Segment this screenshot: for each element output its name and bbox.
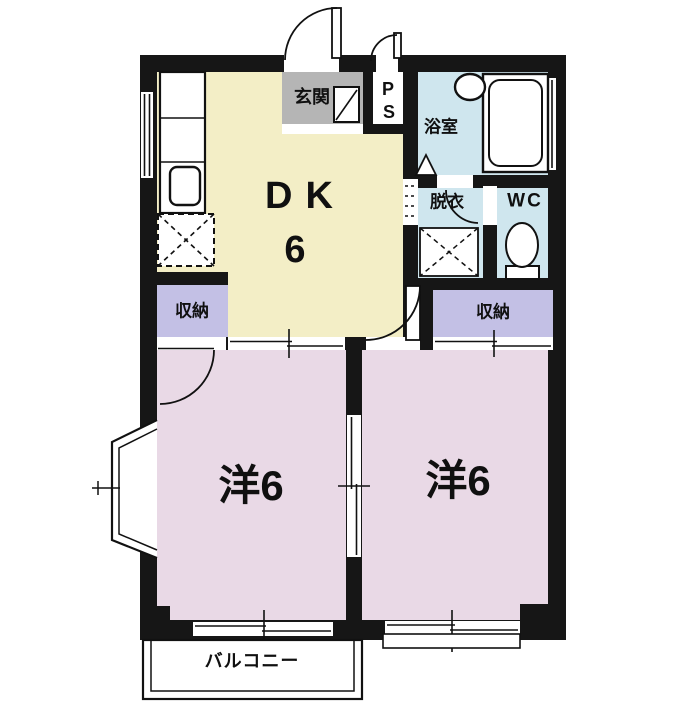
ps-label-s: S <box>383 103 395 121</box>
wc-door-opening <box>483 186 497 225</box>
dk-label: DK <box>252 177 346 215</box>
genkan-label: 玄関 <box>294 88 330 106</box>
balcony-label: バルコニー <box>205 652 300 670</box>
room-left-label: 洋6 <box>218 465 283 507</box>
entrance-opening <box>284 55 339 72</box>
wall-step-left <box>157 606 170 621</box>
room-left-window <box>193 622 333 636</box>
toilet-bowl <box>506 223 538 267</box>
floorplan-drawing <box>0 0 700 707</box>
entrance-door-arc <box>285 8 337 60</box>
floorplan: DK 6 洋6 洋6 玄関 P S 浴室 脱衣 WC 収納 収納 バルコニー <box>0 0 700 707</box>
ps-label-p: P <box>382 80 394 98</box>
bathroom-label: 浴室 <box>424 119 458 136</box>
kitchen-window <box>141 92 153 178</box>
storage-right-label: 収納 <box>476 304 510 321</box>
entrance-door-leaf <box>332 8 341 58</box>
bath-sink <box>455 74 485 100</box>
wall-storage-left-top <box>140 272 228 285</box>
room-right-window-sill <box>383 634 520 648</box>
ps-door-leaf <box>394 33 401 58</box>
storage-right-sliding-door <box>433 337 553 350</box>
genkan-fixtures <box>334 87 359 122</box>
room-right-label: 洋6 <box>425 460 490 502</box>
dressing-label: 脱衣 <box>430 194 464 211</box>
wall-ps-bottom <box>363 124 403 134</box>
bathtub-inner <box>489 80 542 166</box>
kitchen-sink <box>170 167 200 205</box>
wall-genkan-ps <box>363 55 373 134</box>
wc-label: WC <box>507 192 543 211</box>
genkan-step <box>282 124 363 134</box>
storage-left-label: 収納 <box>175 303 209 320</box>
kitchen-unit <box>158 72 214 266</box>
bathroom-door-opening <box>437 175 473 188</box>
bay-window <box>92 420 157 558</box>
dk-roomleft-sliding-door <box>228 337 345 350</box>
dk-size-label: 6 <box>284 231 305 269</box>
wall-corner-notch <box>520 604 548 622</box>
